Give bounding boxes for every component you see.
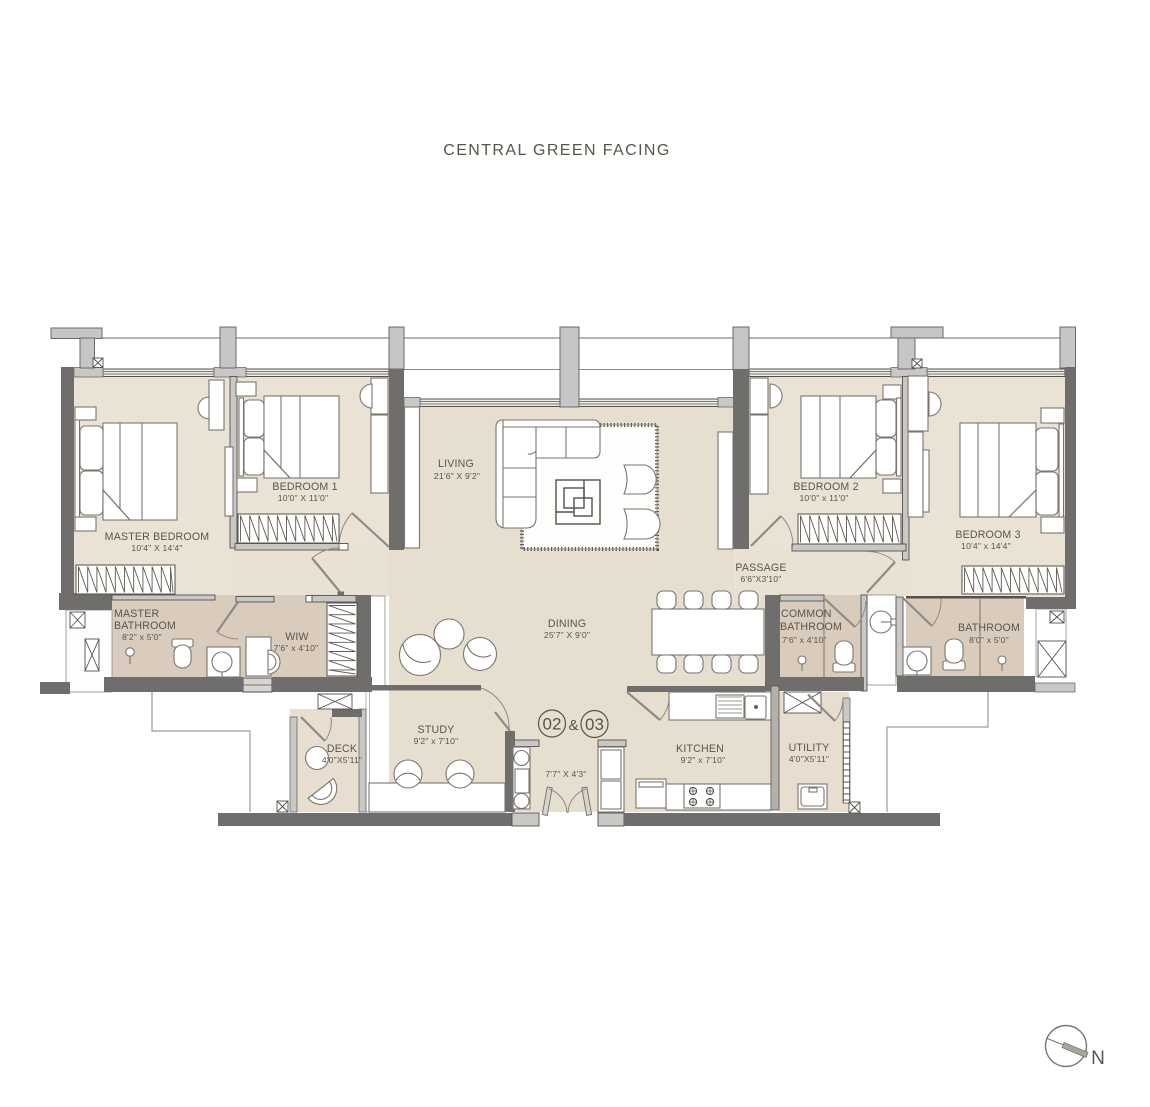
- svg-text:7'6" x 4'10": 7'6" x 4'10": [782, 635, 827, 645]
- svg-text:DECK: DECK: [327, 743, 357, 755]
- svg-text:LIVING: LIVING: [438, 458, 474, 470]
- svg-text:10'0" x 11'0": 10'0" x 11'0": [799, 493, 848, 503]
- svg-text:21'6" X 9'2": 21'6" X 9'2": [434, 471, 480, 481]
- svg-text:10'4" X 14'4": 10'4" X 14'4": [131, 543, 182, 553]
- svg-text:6'6"X3'10": 6'6"X3'10": [740, 574, 781, 584]
- svg-text:8'0" x 5'0": 8'0" x 5'0": [969, 635, 1009, 645]
- svg-text:7'6" x 4'10": 7'6" x 4'10": [274, 643, 319, 653]
- svg-text:CENTRAL GREEN FACING: CENTRAL GREEN FACING: [443, 142, 670, 159]
- svg-text:9'2" x 7'10": 9'2" x 7'10": [414, 736, 459, 746]
- svg-text:MASTER BEDROOM: MASTER BEDROOM: [105, 531, 210, 543]
- svg-text:10'4" x 14'4": 10'4" x 14'4": [961, 541, 1011, 551]
- svg-text:BEDROOM 2: BEDROOM 2: [793, 481, 858, 493]
- svg-text:4'0"X5'11": 4'0"X5'11": [322, 755, 362, 765]
- svg-text:STUDY: STUDY: [418, 724, 455, 736]
- svg-text:BEDROOM 1: BEDROOM 1: [272, 481, 337, 493]
- svg-text:MASTER: MASTER: [114, 608, 159, 620]
- svg-text:N: N: [1091, 1048, 1105, 1069]
- svg-text:BATHROOM: BATHROOM: [114, 620, 176, 632]
- svg-text:03: 03: [585, 715, 604, 734]
- svg-text:25'7" X 9'0": 25'7" X 9'0": [544, 630, 590, 640]
- svg-text:7'7" X 4'3": 7'7" X 4'3": [545, 769, 586, 779]
- svg-text:BATHROOM: BATHROOM: [780, 621, 842, 633]
- svg-text:10'0" X 11'0": 10'0" X 11'0": [278, 493, 329, 503]
- svg-text:COMMON: COMMON: [781, 608, 832, 620]
- svg-text:4'0"X5'11": 4'0"X5'11": [789, 754, 829, 764]
- svg-text:PASSAGE: PASSAGE: [735, 562, 786, 574]
- svg-text:DINING: DINING: [548, 618, 586, 630]
- svg-text:9'2" x 7'10": 9'2" x 7'10": [681, 755, 726, 765]
- svg-text:KITCHEN: KITCHEN: [676, 743, 724, 755]
- svg-text:8'2" x 5'0": 8'2" x 5'0": [122, 632, 162, 642]
- svg-text:UTILITY: UTILITY: [789, 742, 830, 754]
- svg-text:&: &: [568, 717, 578, 734]
- svg-text:02: 02: [543, 715, 562, 734]
- svg-text:BEDROOM 3: BEDROOM 3: [955, 529, 1020, 541]
- svg-text:BATHROOM: BATHROOM: [958, 622, 1020, 634]
- svg-text:WIW: WIW: [285, 631, 309, 643]
